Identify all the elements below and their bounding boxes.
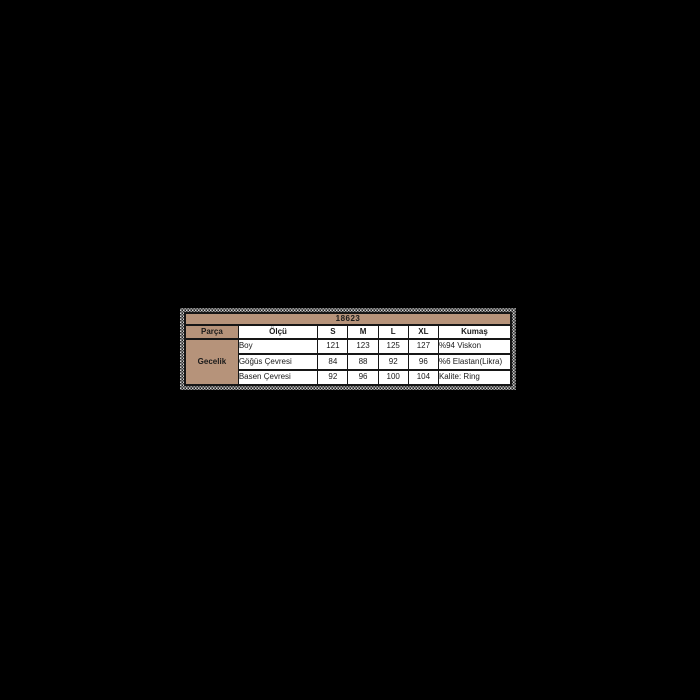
title-row: 18623: [185, 313, 511, 325]
value-boy-l: 125: [378, 339, 408, 354]
value-basen-xl: 104: [408, 370, 438, 385]
fabric-info-viskon: %94 Viskon: [438, 339, 511, 354]
value-gogus-s: 84: [318, 354, 348, 369]
column-header-olcu: Ölçü: [238, 325, 317, 338]
measure-label-gogus-cevresi: Göğüs Çevresi: [238, 354, 317, 369]
header-row: Parça Ölçü S M L XL Kumaş: [185, 325, 511, 338]
column-header-m: M: [348, 325, 378, 338]
value-gogus-m: 88: [348, 354, 378, 369]
value-gogus-xl: 96: [408, 354, 438, 369]
column-header-xl: XL: [408, 325, 438, 338]
fabric-info-elastan: %6 Elastan(Likra): [438, 354, 511, 369]
product-code-cell: 18623: [185, 313, 511, 325]
column-header-parca: Parça: [185, 325, 238, 338]
value-basen-l: 100: [378, 370, 408, 385]
column-header-s: S: [318, 325, 348, 338]
value-boy-m: 123: [348, 339, 378, 354]
value-basen-s: 92: [318, 370, 348, 385]
value-basen-m: 96: [348, 370, 378, 385]
measure-label-basen-cevresi: Basen Çevresi: [238, 370, 317, 385]
column-header-l: L: [378, 325, 408, 338]
measure-label-boy: Boy: [238, 339, 317, 354]
value-gogus-l: 92: [378, 354, 408, 369]
value-boy-s: 121: [318, 339, 348, 354]
table-row: Gecelik Boy 121 123 125 127 %94 Viskon: [185, 339, 511, 354]
size-chart-image: 18623 Parça Ölçü S M L XL Kumaş Gecelik …: [180, 308, 516, 390]
row-group-label-gecelik: Gecelik: [185, 339, 238, 385]
value-boy-xl: 127: [408, 339, 438, 354]
column-header-kumas: Kumaş: [438, 325, 511, 338]
fabric-info-kalite: Kalite: Ring: [438, 370, 511, 385]
size-chart-table: 18623 Parça Ölçü S M L XL Kumaş Gecelik …: [184, 312, 512, 386]
